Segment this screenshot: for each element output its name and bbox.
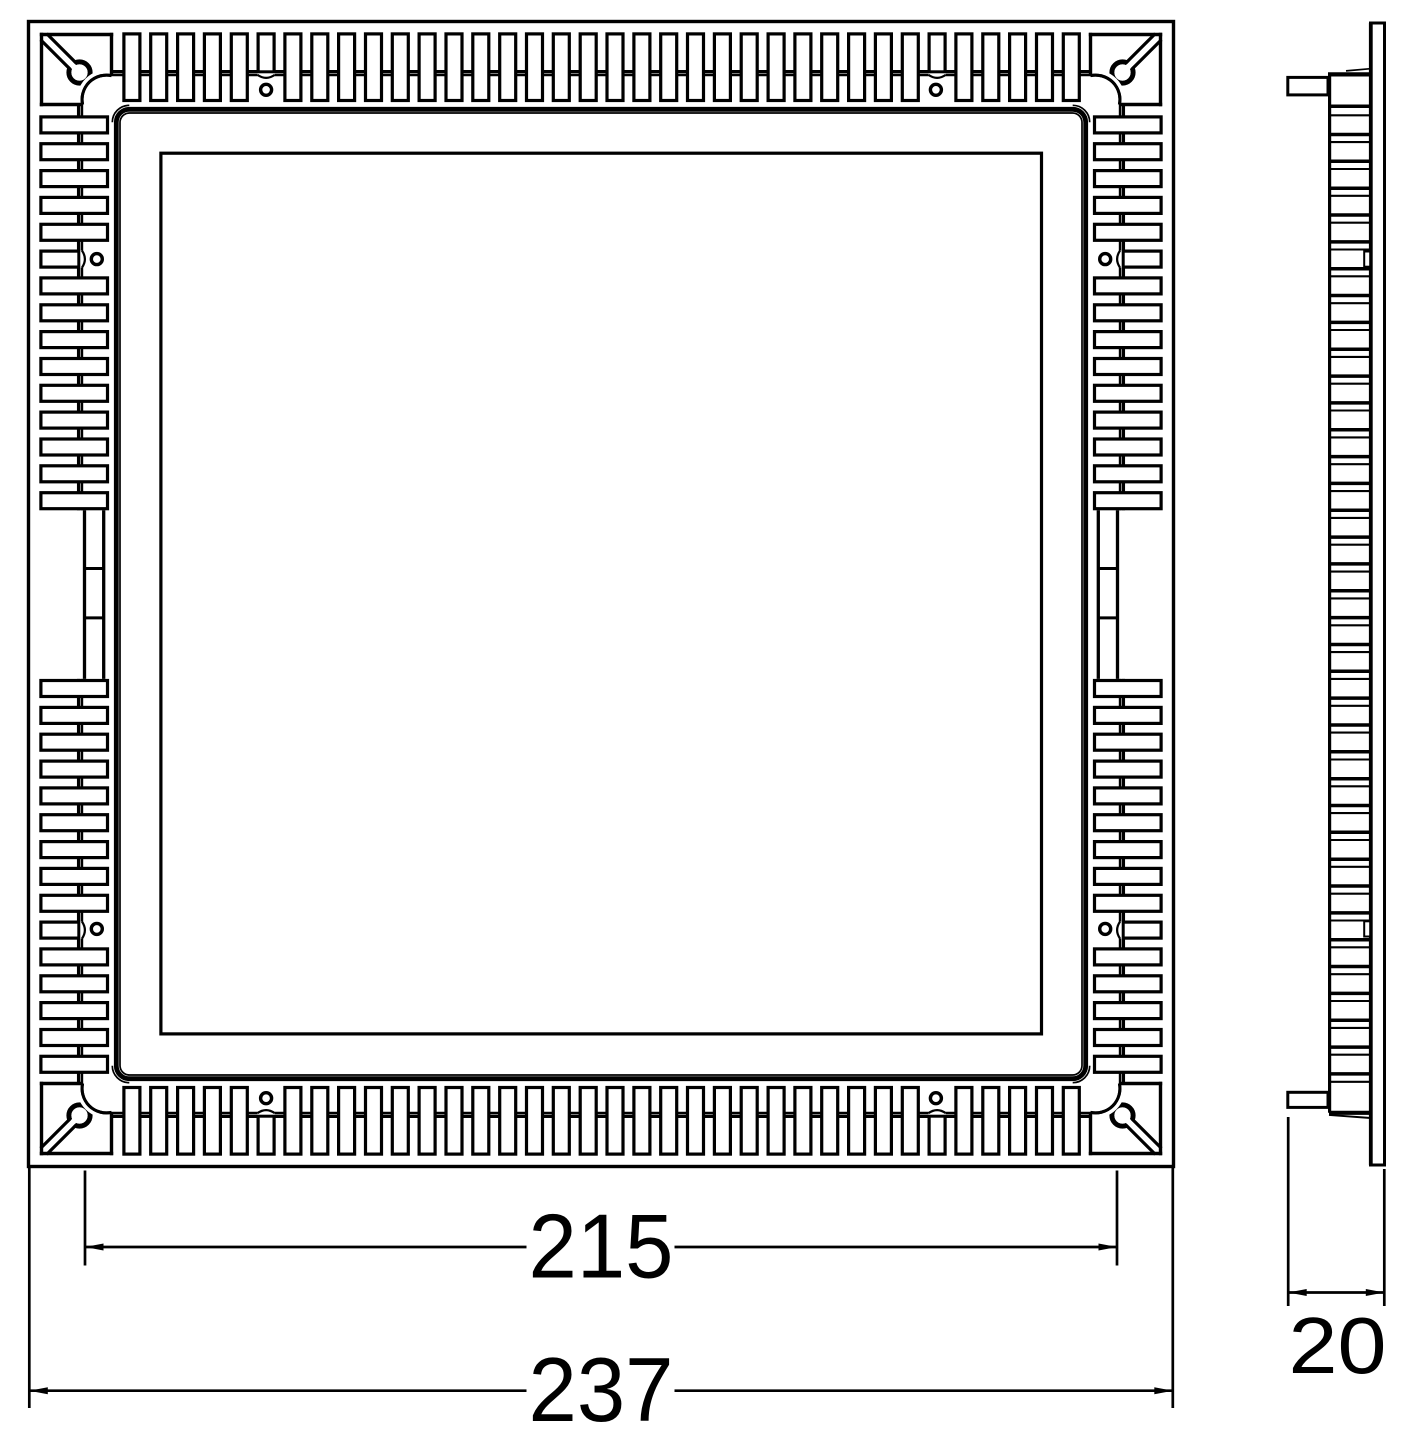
svg-text:215: 215	[529, 1197, 674, 1298]
svg-text:20: 20	[1289, 1301, 1387, 1390]
svg-text:237: 237	[529, 1340, 674, 1433]
